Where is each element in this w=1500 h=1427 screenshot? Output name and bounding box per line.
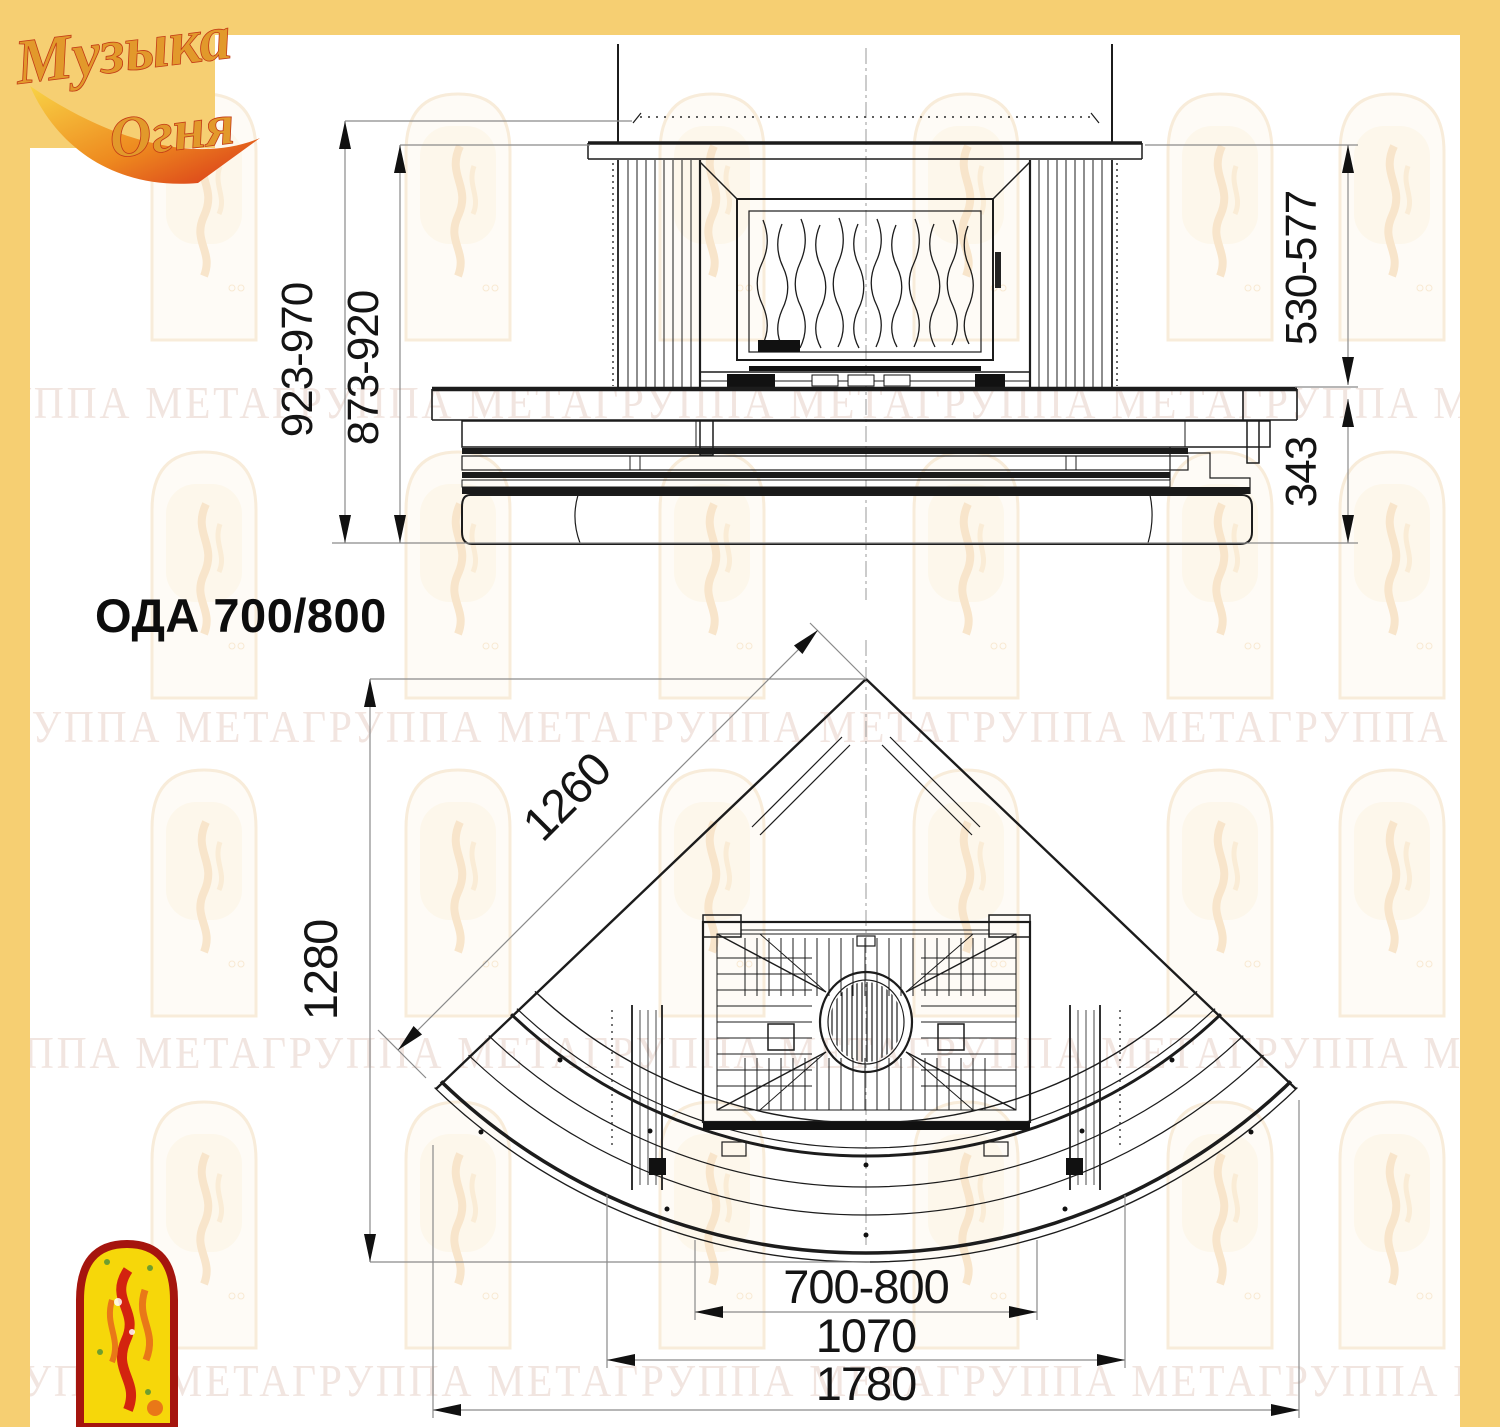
grate-sill-block: [758, 340, 800, 352]
firebox-front-edge: [703, 1122, 1030, 1130]
dim-front-base-height: 343: [1277, 437, 1326, 507]
technical-drawing-canvas: ГРУППА МЕТАГРУППА МЕТАГРУППА МЕТАГРУППА …: [0, 0, 1500, 1427]
model-title: ОДА 700/800: [95, 589, 387, 642]
dim-front-height-overall: 923-970: [273, 283, 322, 437]
firebird-emblem: [80, 1244, 174, 1427]
watermark-text-row: ГРУППА МЕТАГРУППА МЕТАГРУППА МЕТАГРУППА …: [0, 701, 1500, 752]
hearth-band: [700, 372, 1030, 387]
watermark-text-row: ГРУППА МЕТАГРУППА МЕТАГРУППА МЕТАГРУППА …: [0, 1355, 1500, 1406]
dim-plan-opening-width: 700-800: [783, 1260, 949, 1313]
door-handle: [995, 252, 1001, 288]
dim-plan-diagonal: 1260: [512, 742, 621, 851]
dim-plan-depth: 1280: [294, 920, 347, 1021]
emblem-dot: [147, 1400, 163, 1416]
hood: [588, 44, 1142, 159]
frame-right-strip: [1460, 0, 1500, 1427]
frame-left-strip: [0, 0, 30, 1427]
dim-plan-overall-width: 1780: [816, 1357, 917, 1410]
dim-front-firebox-zone: 530-577: [1277, 191, 1326, 345]
drawing-page: ГРУППА МЕТАГРУППА МЕТАГРУППА МЕТАГРУППА …: [0, 0, 1500, 1427]
dim-front-height-inner: 873-920: [339, 291, 388, 445]
door-bottom-bar: [749, 366, 981, 371]
right-pilaster: [1030, 160, 1117, 389]
dim-plan-mid-width: 1070: [816, 1309, 917, 1362]
